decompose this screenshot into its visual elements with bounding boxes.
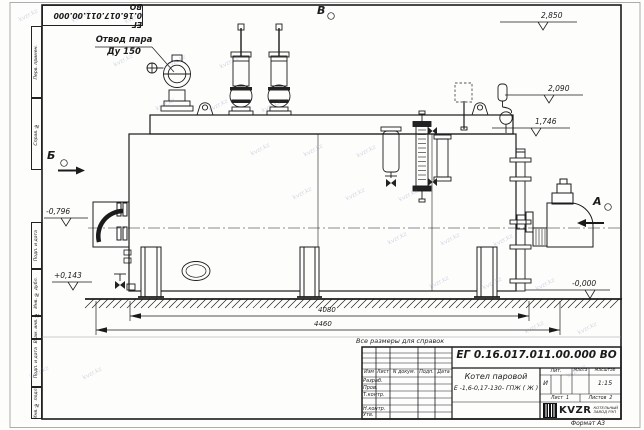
watermark-text: kvzr.kz <box>356 144 377 160</box>
tb-col-sign: Подп. <box>418 370 435 375</box>
tb-sheet-label: Лист <box>551 396 563 401</box>
watermark-text: kvzr.kz <box>208 98 229 114</box>
drawing-sheet: ЕГ 0.16.017.011.00.000 ВО Перв. примен. … <box>0 0 644 430</box>
elevation-1746: 1,746 <box>535 118 556 126</box>
frame-box-inv-dubl: Инв. № дубл. <box>31 269 42 316</box>
tb-row-utv: Утв. <box>363 413 374 418</box>
tb-sheets-value: 2 <box>609 396 612 401</box>
watermark-text: kvzr.kz <box>250 142 271 158</box>
product-name-line1: Котел паровой <box>453 373 539 381</box>
tb-sheets-label: Листов <box>589 396 607 401</box>
watermark-text: kvzr.kz <box>155 97 176 113</box>
product-name-line2: Е -1,6-0,17-130- ГПЖ ( Ж ) <box>452 386 540 393</box>
watermark-text: kvzr.kz <box>261 99 282 115</box>
tb-lit-value: И <box>540 380 551 387</box>
watermark-text: kvzr.kz <box>18 8 39 24</box>
tb-lit-header: Лит. <box>540 369 572 374</box>
tb-sheet-cell: Лист 1 <box>540 394 580 402</box>
watermark-text: kvzr.kz <box>493 233 514 249</box>
title-block-doc-number: ЕГ 0.16.017.011.00.000 ВО <box>454 350 619 361</box>
watermark-text: kvzr.kz <box>219 55 240 71</box>
company-name: КОТЕЛЬНЫЙ ЗАВОД РЭП <box>593 406 618 415</box>
watermark-text: kvzr.kz <box>292 186 313 202</box>
view-label-v: В <box>317 5 325 17</box>
frame-box-vzam-inv: Взам. инв. № <box>31 316 42 339</box>
text-overlay: ЕГ 0.16.017.011.00.000 ВО Перв. примен. … <box>0 0 644 430</box>
watermark-text: kvzr.kz <box>429 275 450 291</box>
dimension-4080: 4080 <box>318 307 336 314</box>
company-name-line2: ЗАВОД РЭП <box>593 410 618 414</box>
tb-sheet-value: 1 <box>566 396 569 401</box>
frame-box-inv-podl: Инв. № подл. <box>31 387 42 419</box>
elevation-ground: -0,000 <box>572 280 596 288</box>
watermark-text: kvzr.kz <box>303 143 324 159</box>
company-logo-icon <box>543 403 557 418</box>
steam-outlet-label-line2: Ду 150 <box>100 48 148 57</box>
tb-col-date: Дата <box>435 370 452 375</box>
tb-col-doc: N докум. <box>390 370 418 375</box>
company-logo-row: KVZR КОТЕЛЬНЫЙ ЗАВОД РЭП <box>543 402 620 418</box>
steam-outlet-label-line1: Отвод пара <box>92 36 156 45</box>
tb-col-list: Лист <box>376 370 390 375</box>
watermark-text: kvzr.kz <box>398 188 419 204</box>
tb-scale-header: Масштаб <box>589 369 621 374</box>
watermark-text: kvzr.kz <box>166 54 187 70</box>
frame-box-podp-data-1: Подп. и дата <box>31 222 42 269</box>
tb-col-izm: Изм <box>362 370 376 375</box>
watermark-text: kvzr.kz <box>345 187 366 203</box>
watermark-text: kvzr.kz <box>524 320 545 336</box>
tb-row-razrab: Разраб. <box>363 379 383 384</box>
reference-note: Все размеры для справок <box>356 338 444 345</box>
view-label-a: А <box>593 196 602 208</box>
tb-mass-header: Масса <box>572 369 589 374</box>
dimension-4460: 4460 <box>314 321 332 328</box>
frame-box-podp-data-2: Подп. и дата <box>31 339 42 387</box>
tb-scale-value: 1:15 <box>589 380 621 387</box>
frame-box-sprav-no: Справ. № <box>31 98 42 170</box>
tb-sheets-cell: Листов 2 <box>580 394 621 402</box>
view-label-b: Б <box>47 150 55 162</box>
doc-number-top-box: ЕГ 0.16.017.011.00.000 ВО <box>42 5 143 26</box>
watermark-text: kvzr.kz <box>82 366 103 382</box>
elevation-left-lower: +0,143 <box>54 272 82 280</box>
watermark-text: kvzr.kz <box>440 232 461 248</box>
frame-box-perv-primen: Перв. примен. <box>31 26 42 98</box>
format-label: Формат А3 <box>556 421 620 427</box>
watermark-text: kvzr.kz <box>482 276 503 292</box>
elevation-2090: 2,090 <box>548 85 569 93</box>
tb-row-tkontr: Т.контр. <box>363 393 385 398</box>
watermark-text: kvzr.kz <box>535 277 556 293</box>
watermark-text: kvzr.kz <box>577 321 598 337</box>
watermark-text: kvzr.kz <box>387 231 408 247</box>
elevation-2850: 2,850 <box>541 12 562 20</box>
tb-row-prov: Пров. <box>363 386 378 391</box>
company-logo-text: KVZR <box>559 405 591 416</box>
elevation-left-upper: -0,796 <box>46 208 70 216</box>
tb-row-nkontr: Н.контр. <box>363 407 385 412</box>
